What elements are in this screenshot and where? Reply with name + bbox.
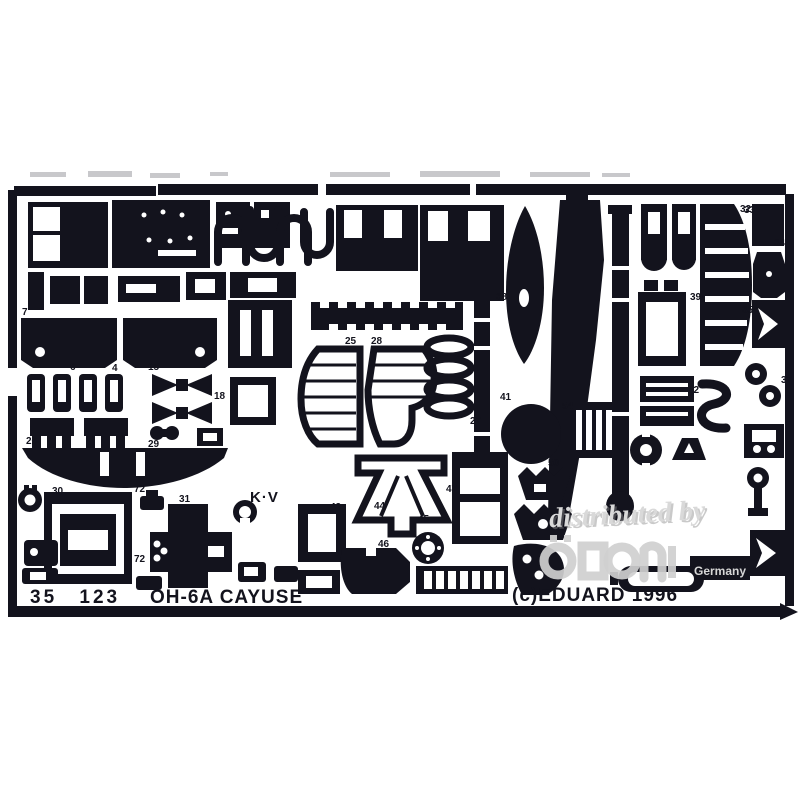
part-number-label: 45 <box>418 514 430 525</box>
part-number-label: 7 <box>22 307 28 318</box>
product-photo: 35 123 OH-6A CAYUSE (c)EDUARD 1996 K·V 7… <box>0 0 800 800</box>
top-faint-text-remnant <box>30 171 630 178</box>
part-number-label: 72 <box>134 554 146 565</box>
part-number-label: 33 <box>744 205 756 216</box>
part-number-label: 72 <box>134 484 146 495</box>
part-number-label: 4 <box>112 363 118 374</box>
part-number-label: 30 <box>52 486 64 497</box>
parts-mid-left <box>18 300 292 512</box>
part-number-label: 29 <box>148 439 160 450</box>
part-number-label: 47 <box>446 484 458 495</box>
part-number-label: 41 <box>500 392 512 403</box>
part-number-label: 54 <box>562 401 574 412</box>
part-number-label: 38 <box>496 292 508 303</box>
photoetch-fret-illustration: 35 123 OH-6A CAYUSE (c)EDUARD 1996 K·V 7… <box>0 0 800 800</box>
part-number-label: 18 <box>214 391 226 402</box>
part-number-label: 34 <box>774 238 786 249</box>
part-number-label: 37 <box>781 375 793 386</box>
copyright-text: (c)EDUARD 1996 <box>512 585 678 606</box>
subject-text: OH-6A CAYUSE <box>150 587 303 608</box>
part-number-label: 6 <box>70 362 76 373</box>
part-number-label: 27 <box>470 416 482 427</box>
part-number-label: 43 <box>330 502 342 513</box>
part-number-label: 39 <box>690 292 702 303</box>
part-number-label: 50 <box>548 458 560 469</box>
part-number-label: 44 <box>374 501 386 512</box>
etched-kv-marking: K·V <box>250 489 279 506</box>
distributor-watermark: distributed by distributed by <box>548 495 708 536</box>
part-number-label: 25 <box>345 336 357 347</box>
part-number-label: 31 <box>179 494 191 505</box>
part-number-label: 46 <box>378 539 390 550</box>
part-number-label: 15 <box>148 362 160 373</box>
part-number-label: 28 <box>371 336 383 347</box>
part-number-label: 42 <box>688 385 700 396</box>
part-number-label: 35 <box>742 305 754 316</box>
watermark-country-text: Germany <box>694 564 746 578</box>
part-number-label: 26 <box>26 436 38 447</box>
catalog-number-text: 35 123 <box>30 587 120 608</box>
